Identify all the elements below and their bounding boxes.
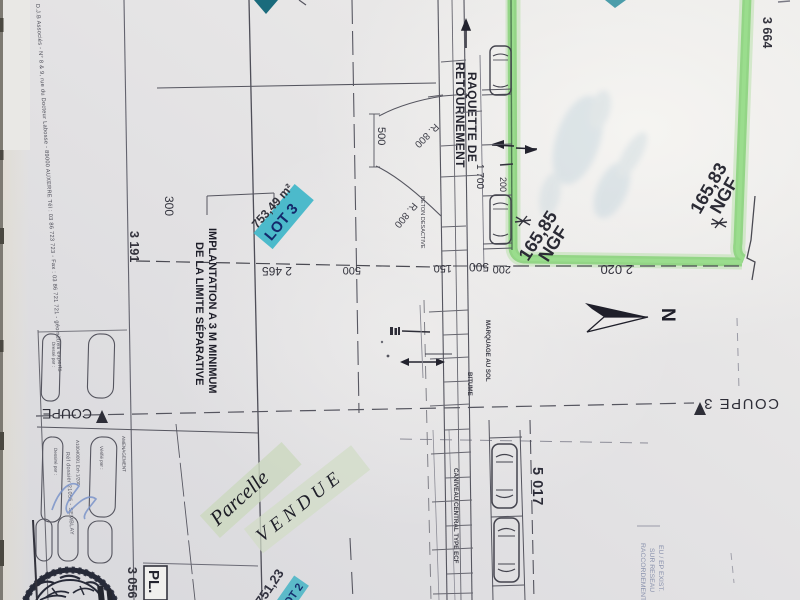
svg-text:500: 500 bbox=[343, 264, 361, 276]
svg-text:RACCORDEMENT: RACCORDEMENT bbox=[639, 543, 646, 600]
svg-text:PL.: PL. bbox=[145, 570, 162, 593]
svg-text:200: 200 bbox=[493, 263, 511, 275]
svg-text:AMENAGEMENT: AMENAGEMENT bbox=[121, 436, 127, 472]
svg-text:Dessiné par :: Dessiné par : bbox=[53, 448, 58, 475]
svg-text:A10040091 Ech 1/200: A10040091 Ech 1/200 bbox=[75, 440, 81, 486]
svg-text:MARQUAGE AU SOL: MARQUAGE AU SOL bbox=[484, 320, 491, 382]
svg-text:Vérifié par :: Vérifié par : bbox=[99, 446, 104, 470]
svg-text:N: N bbox=[657, 308, 678, 322]
svg-text:500: 500 bbox=[375, 127, 387, 145]
svg-text:3 056: 3 056 bbox=[125, 567, 139, 598]
svg-text:3 664: 3 664 bbox=[760, 17, 774, 48]
svg-text:Dressé par :: Dressé par : bbox=[51, 342, 56, 367]
svg-text:IMPLANTATION A 3 M MINIMUM: IMPLANTATION A 3 M MINIMUM bbox=[206, 228, 218, 394]
svg-text:BETON DESACTIVE: BETON DESACTIVE bbox=[419, 196, 425, 249]
svg-text:COUPE 3: COUPE 3 bbox=[703, 395, 779, 412]
svg-text:200: 200 bbox=[498, 177, 508, 192]
svg-text:500: 500 bbox=[469, 260, 489, 274]
svg-text:150: 150 bbox=[434, 262, 452, 274]
svg-text:DE LA LIMITE SÉPARATIVE: DE LA LIMITE SÉPARATIVE bbox=[193, 242, 206, 385]
svg-text:1 700: 1 700 bbox=[474, 164, 485, 189]
svg-text:2 020: 2 020 bbox=[600, 262, 633, 277]
svg-text:SUR RESEAU: SUR RESEAU bbox=[648, 548, 655, 592]
svg-text:EU / EP EXIST.: EU / EP EXIST. bbox=[657, 545, 664, 592]
svg-text:3 191: 3 191 bbox=[127, 231, 141, 262]
svg-text:2 465: 2 465 bbox=[262, 264, 292, 278]
svg-text:300: 300 bbox=[162, 196, 176, 216]
svg-text:BITUME: BITUME bbox=[466, 372, 473, 396]
svg-text:RETOURNEMENT: RETOURNEMENT bbox=[453, 62, 467, 168]
svg-text:COUPE: COUPE bbox=[42, 406, 92, 422]
